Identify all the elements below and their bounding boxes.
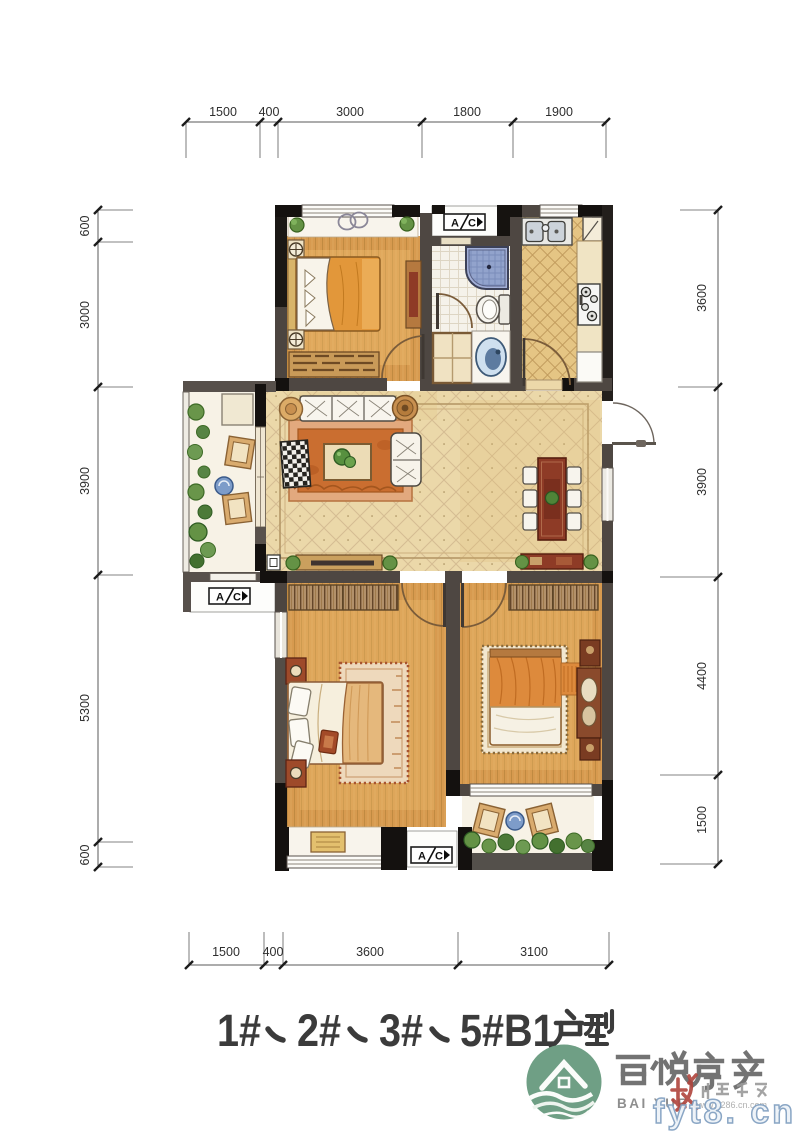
svg-text:1#: 1# [217, 1006, 261, 1056]
svg-text:3#: 3# [379, 1006, 423, 1056]
svg-text:600: 600 [78, 216, 92, 237]
svg-text:3600: 3600 [356, 945, 384, 959]
svg-text:5#B1: 5#B1 [460, 1006, 555, 1056]
svg-text:1500: 1500 [212, 945, 240, 959]
svg-text:1500: 1500 [209, 105, 237, 119]
svg-text:A: A [216, 592, 224, 604]
svg-text:A: A [451, 218, 459, 230]
svg-text:3100: 3100 [520, 945, 548, 959]
svg-text:3000: 3000 [336, 105, 364, 119]
svg-text:3000: 3000 [78, 301, 92, 329]
svg-text:600: 600 [78, 845, 92, 866]
svg-text:4400: 4400 [695, 662, 709, 690]
svg-text:C: C [435, 851, 443, 863]
svg-text:1800: 1800 [453, 105, 481, 119]
svg-text:C: C [468, 218, 476, 230]
svg-text:2#: 2# [297, 1006, 341, 1056]
svg-text:3600: 3600 [695, 284, 709, 312]
svg-text:400: 400 [263, 945, 284, 959]
svg-text:1900: 1900 [545, 105, 573, 119]
svg-text:3900: 3900 [695, 468, 709, 496]
svg-text:400: 400 [259, 105, 280, 119]
svg-text:5300: 5300 [78, 694, 92, 722]
svg-text:1500: 1500 [695, 806, 709, 834]
svg-text:A: A [418, 851, 426, 863]
svg-text:fyt8. cn: fyt8. cn [653, 1093, 796, 1131]
svg-text:C: C [233, 592, 241, 604]
svg-text:3900: 3900 [78, 467, 92, 495]
